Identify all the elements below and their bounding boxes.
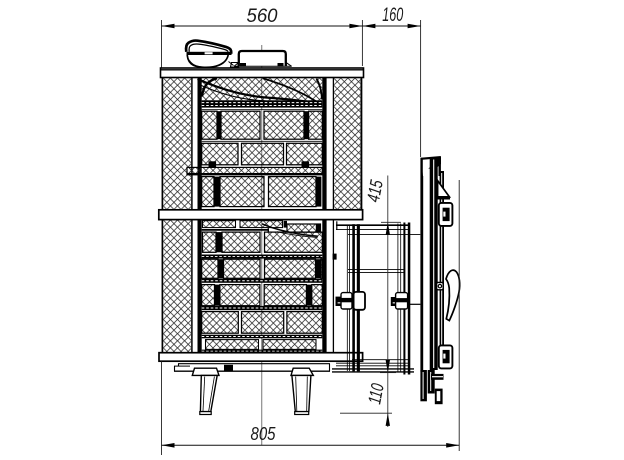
svg-text:160: 160 [382, 5, 403, 26]
svg-text:415: 415 [363, 178, 387, 204]
svg-text:560: 560 [247, 6, 278, 27]
svg-text:110: 110 [364, 382, 388, 406]
svg-text:805: 805 [251, 424, 277, 444]
